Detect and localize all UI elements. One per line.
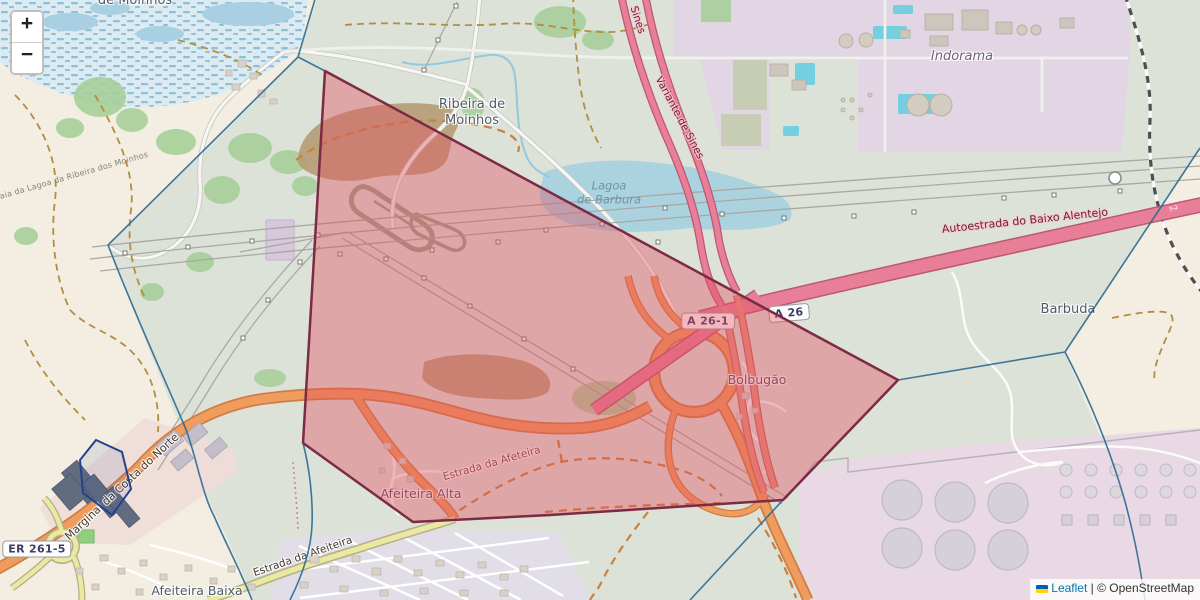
leaflet-map[interactable]: de Moinhos Ribeira de Moinhos Lagoa de B… <box>0 0 1200 600</box>
selected-site-polygon[interactable] <box>80 440 131 515</box>
highlighted-red-polygon[interactable] <box>303 71 898 522</box>
zoom-control: + − <box>10 10 44 75</box>
attribution-bar: Leaflet | © OpenStreetMap <box>1030 579 1200 600</box>
ukraine-flag-icon <box>1036 585 1048 593</box>
zoom-in-button[interactable]: + <box>12 12 42 42</box>
leaflet-link[interactable]: Leaflet <box>1051 581 1087 595</box>
attribution-separator: | <box>1087 581 1097 595</box>
osm-copyright[interactable]: © OpenStreetMap <box>1097 581 1194 595</box>
zoom-out-button[interactable]: − <box>12 42 42 73</box>
vector-overlay-layer <box>0 0 1200 600</box>
